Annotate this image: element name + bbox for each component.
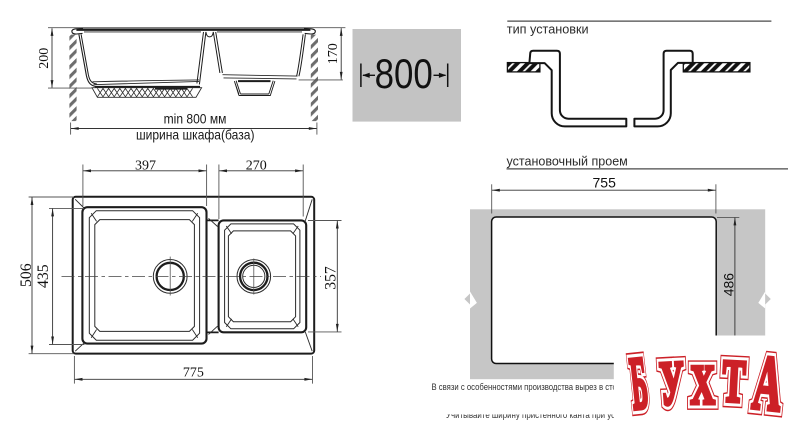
svg-text:357: 357 xyxy=(322,266,339,290)
svg-text:У: У xyxy=(658,348,686,418)
svg-text:506: 506 xyxy=(18,263,35,287)
svg-text:Т: Т xyxy=(721,347,747,416)
svg-text:200: 200 xyxy=(37,48,52,69)
svg-text:min 800 мм: min 800 мм xyxy=(164,111,227,127)
svg-text:486: 486 xyxy=(721,273,737,297)
svg-text:170: 170 xyxy=(326,43,341,64)
svg-text:270: 270 xyxy=(246,158,267,173)
svg-text:435: 435 xyxy=(35,264,52,288)
svg-text:Х: Х xyxy=(690,355,715,417)
svg-text:755: 755 xyxy=(593,175,617,191)
svg-text:800: 800 xyxy=(375,51,433,98)
svg-text:ширина шкафа(база): ширина шкафа(база) xyxy=(136,127,255,143)
svg-text:тип установки: тип установки xyxy=(507,21,589,36)
svg-text:397: 397 xyxy=(135,158,156,173)
svg-text:775: 775 xyxy=(183,365,204,380)
svg-text:установочный проем: установочный проем xyxy=(507,154,628,168)
